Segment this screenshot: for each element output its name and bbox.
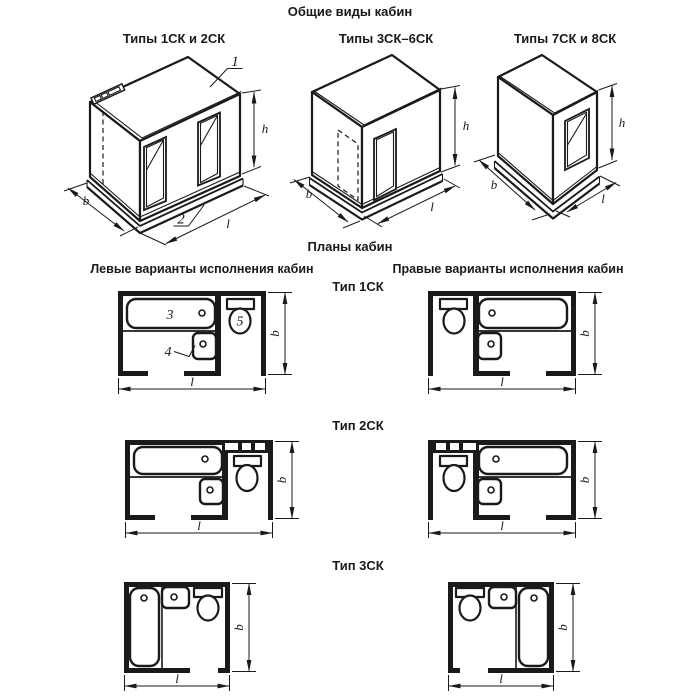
dim-label-l: l: [500, 374, 504, 389]
iso-view-7sk-8sk: h b l: [470, 48, 670, 243]
dim-label-l: l: [499, 671, 503, 686]
svg-text:2: 2: [177, 212, 185, 228]
right-variants-header: Правые варианты исполнения кабин: [392, 262, 623, 276]
dimension-l: l: [429, 518, 576, 538]
vent-grille: [222, 440, 273, 453]
door-front: [374, 129, 396, 200]
bathtub: [479, 447, 567, 474]
plan-3sk-right: b l: [428, 579, 603, 697]
cabin-box: [87, 57, 243, 233]
view-title-3sk-6sk: Типы 3СК–6СК: [339, 31, 433, 46]
plan-2sk-right: b l: [408, 437, 613, 545]
view-title-1sk-2sk: Типы 1СК и 2СК: [123, 31, 225, 46]
plan-1sk-left: 3 4 5 b l: [98, 288, 303, 400]
dim-label-b: b: [577, 476, 592, 483]
dimension-b: b: [274, 442, 299, 519]
toilet: [234, 456, 261, 491]
dimension-b: b: [231, 584, 256, 672]
washbasin: [489, 587, 516, 608]
dim-label-h: h: [619, 115, 626, 130]
door-left: [144, 137, 166, 210]
dim-label-l: l: [601, 191, 605, 206]
dim-label-l: l: [500, 518, 504, 533]
bathtub: [519, 588, 548, 666]
toilet: [440, 456, 467, 491]
dim-label-b: b: [491, 177, 498, 192]
callout-washbasin: 4: [165, 345, 172, 360]
dimension-h: h: [242, 90, 268, 174]
dim-label-h: h: [262, 121, 269, 136]
dimension-b: b: [577, 442, 602, 519]
vent-grille: [428, 440, 479, 453]
iso-view-1sk-2sk: 1 2 h b l: [58, 47, 293, 252]
washbasin: [162, 587, 189, 608]
dimension-h: h: [599, 84, 626, 169]
dim-label-h: h: [463, 118, 470, 133]
door-right: [198, 113, 220, 186]
callout-roof: 1: [210, 54, 243, 87]
callout-toilet: 5: [237, 315, 244, 330]
toilet: [194, 588, 222, 621]
toilet: [440, 299, 467, 334]
plan-3sk-left: b l: [104, 579, 279, 697]
plan-2sk-left: b l: [105, 437, 310, 545]
dim-label-b: b: [306, 186, 313, 201]
washbasin: [478, 333, 501, 359]
plan-type-1sk-label: Тип 1СК: [332, 279, 383, 294]
dimension-l: l: [449, 671, 554, 691]
plan-type-2sk-label: Тип 2СК: [332, 418, 383, 433]
dimension-h: h: [441, 86, 469, 173]
plan-1sk-right: b l: [408, 288, 613, 400]
dim-label-b: b: [274, 476, 289, 483]
bathtub: [134, 447, 222, 474]
bathtub: [479, 299, 567, 328]
drawing-sheet: Общие виды кабин Типы 1СК и 2СК Типы 3СК…: [0, 0, 700, 700]
cabin-box: [310, 55, 443, 220]
dimension-b: b: [267, 293, 292, 375]
dimension-b: b: [577, 293, 602, 375]
cabin-box: [495, 55, 600, 219]
plan-type-3sk-label: Тип 3СК: [332, 558, 383, 573]
bathtub: [130, 588, 159, 666]
general-views-title: Общие виды кабин: [288, 4, 413, 19]
dimension-b: b: [555, 584, 580, 672]
callout-bathtub: 3: [166, 308, 174, 323]
washbasin: [478, 479, 501, 504]
dim-label-l: l: [190, 374, 194, 389]
dim-label-l: l: [430, 199, 434, 214]
dim-label-l: l: [226, 216, 230, 231]
toilet: [456, 588, 484, 621]
view-title-7sk-8sk: Типы 7СК и 8СК: [514, 31, 616, 46]
dim-label-l: l: [175, 671, 179, 686]
dim-label-l: l: [197, 518, 201, 533]
dimension-l: l: [126, 518, 273, 538]
dim-label-b: b: [83, 193, 90, 208]
svg-text:1: 1: [231, 54, 239, 70]
washbasin: [193, 333, 216, 359]
dim-label-b: b: [231, 624, 246, 631]
dimension-l: l: [125, 671, 230, 691]
dim-label-b: b: [555, 624, 570, 631]
washbasin: [200, 479, 223, 504]
dim-label-b: b: [267, 330, 282, 337]
dimension-l: l: [119, 374, 266, 394]
dimension-l: l: [429, 374, 576, 394]
dim-label-b: b: [577, 330, 592, 337]
left-variants-header: Левые варианты исполнения кабин: [90, 262, 313, 276]
iso-view-3sk-6sk: h b l: [288, 48, 478, 248]
